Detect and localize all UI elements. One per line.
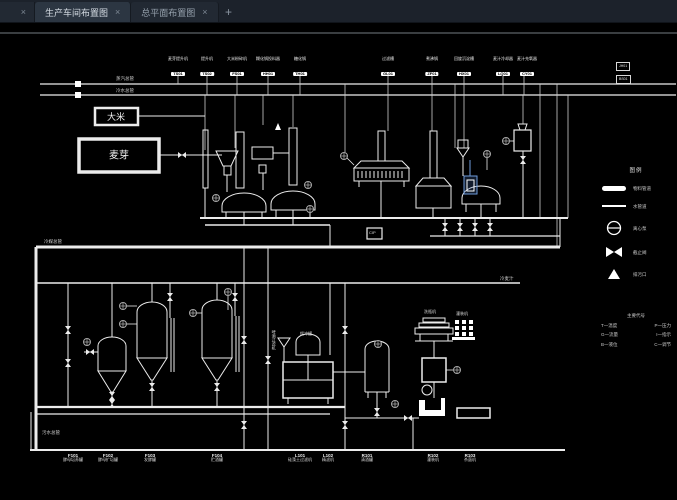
labeler-conveyor[interactable] bbox=[413, 398, 490, 450]
instrument-code-notes: 主要代号 T一温度 P一压力 G一流量 I一指示 B一液位 C一调节 bbox=[599, 313, 673, 351]
notes-row: B一液位 C一调节 bbox=[599, 342, 673, 347]
close-icon[interactable]: × bbox=[202, 7, 207, 17]
rice-label: 大米 bbox=[107, 112, 125, 122]
dosing-vessel[interactable] bbox=[510, 124, 531, 218]
notes-row: T一温度 P一压力 bbox=[599, 323, 673, 328]
equipment-label: 麦芽提升机 TS01 bbox=[168, 57, 188, 80]
bottom-equipment-label: L101 硅藻土过滤机 bbox=[288, 453, 312, 463]
filter-vertical-label: 啤酒过滤机 bbox=[271, 330, 276, 350]
legend-title: 图例 bbox=[601, 168, 671, 174]
legend-item: 离心泵 bbox=[601, 220, 671, 236]
legend-item: 水管道 bbox=[601, 202, 671, 210]
equipment-label: 麦汁冷却器 LQ01 bbox=[493, 57, 513, 80]
water-pipe-icon bbox=[601, 202, 627, 210]
cip-label: CIP bbox=[369, 231, 376, 236]
malt-label: 麦芽 bbox=[109, 150, 129, 162]
cold-water-main-line bbox=[40, 92, 676, 98]
sewage-main-label: 污水总管 bbox=[42, 430, 60, 435]
filler-machine[interactable] bbox=[452, 320, 475, 340]
equipment-label: 大米粉碎机 FS01 bbox=[227, 57, 247, 80]
equipment-label: 糊化锅投料器 HH01 bbox=[256, 57, 280, 80]
station-code-box: JH01 bbox=[616, 62, 630, 71]
bottle-washer[interactable] bbox=[415, 318, 453, 358]
mill-elevator-group[interactable] bbox=[203, 123, 289, 218]
legend-item: 排污口 bbox=[601, 268, 671, 280]
tab-workshop-layout[interactable]: 生产车间布置图 × bbox=[35, 2, 131, 22]
tab-label: 总平面布置图 bbox=[141, 6, 195, 19]
washer-label: 洗瓶机 bbox=[424, 310, 436, 315]
close-icon[interactable]: × bbox=[21, 7, 26, 17]
tab-partial[interactable]: × bbox=[0, 2, 35, 22]
equipment-label: 麦汁充氧器 CY01 bbox=[517, 57, 537, 80]
equipment-label: 糖化锅 TH01 bbox=[293, 57, 307, 80]
steam-main-line bbox=[40, 81, 676, 87]
filler-label: 灌装机 bbox=[456, 312, 468, 317]
material-pipe-icon bbox=[601, 184, 627, 192]
equipment-label: 回旋沉淀槽 HX01 bbox=[454, 57, 474, 80]
gelatinization-kettle[interactable] bbox=[222, 132, 266, 225]
selected-heat-exchanger[interactable] bbox=[464, 160, 477, 194]
close-icon[interactable]: × bbox=[115, 7, 120, 17]
legend-item: 物料管道 bbox=[601, 184, 671, 192]
equipment-label: 过滤槽 GL01 bbox=[381, 57, 395, 80]
equipment-label: 提升机 TS02 bbox=[200, 57, 214, 80]
coolant-main-label: 冷媒总管 bbox=[44, 239, 62, 244]
pump-icon bbox=[601, 220, 627, 236]
notes-row: G一流量 I一指示 bbox=[599, 332, 673, 337]
new-tab-button[interactable]: + bbox=[219, 2, 239, 22]
tab-label: 生产车间布置图 bbox=[45, 6, 108, 19]
legend: 图例 物料管道 水管道 离心泵 截止阀 排污口 bbox=[601, 168, 671, 290]
station-code-box: BS01 bbox=[616, 75, 631, 84]
buffer-tank-label: 缓冲罐 bbox=[300, 332, 312, 337]
lauter-tun[interactable] bbox=[347, 131, 409, 218]
pasteurizer[interactable] bbox=[422, 358, 453, 398]
bottom-equipment-label: R102 灌装机 bbox=[427, 453, 439, 463]
bottom-equipment-label: F103 发酵罐 bbox=[144, 453, 156, 463]
notes-title: 主要代号 bbox=[599, 313, 673, 318]
drawing-canvas[interactable] bbox=[0, 0, 677, 500]
drain-icon bbox=[601, 268, 627, 280]
cad-viewer-window: { "tabbar": { "partial_tab_close": "×", … bbox=[0, 0, 677, 500]
bottom-equipment-label: L102 精滤机 bbox=[322, 453, 334, 463]
bright-beer-tank[interactable] bbox=[345, 341, 419, 418]
cold-water-main-label: 冷水总管 bbox=[116, 88, 134, 93]
bottom-equipment-label: R103 杀菌机 bbox=[464, 453, 476, 463]
valve-icon bbox=[601, 246, 627, 258]
valve-icons bbox=[65, 152, 526, 429]
fermentation-piping bbox=[36, 247, 345, 450]
beer-filter-unit[interactable] bbox=[278, 334, 365, 404]
steam-main-label: 蒸汽总管 bbox=[116, 76, 134, 81]
wort-kettle[interactable] bbox=[416, 131, 469, 218]
bottom-equipment-label: R101 清酒罐 bbox=[361, 453, 373, 463]
bottom-equipment-label: F102 酵母扩培罐 bbox=[98, 453, 118, 463]
malt-box[interactable] bbox=[79, 139, 222, 172]
tab-bar: × 生产车间布置图 × 总平面布置图 × + bbox=[0, 0, 677, 23]
fermenter-1[interactable] bbox=[126, 302, 174, 407]
legend-item: 截止阀 bbox=[601, 246, 671, 258]
brewhouse-manifold bbox=[200, 218, 568, 247]
tab-site-plan[interactable]: 总平面布置图 × bbox=[131, 2, 218, 22]
main-pipes bbox=[30, 247, 565, 450]
bottom-equipment-label: F104 贮酒罐 bbox=[211, 453, 223, 463]
cold-wort-label: 冷麦汁 bbox=[500, 276, 514, 281]
equipment-label: 煮沸锅 ZF01 bbox=[425, 57, 438, 80]
bottom-equipment-label: F101 酵母培养罐 bbox=[63, 453, 83, 463]
